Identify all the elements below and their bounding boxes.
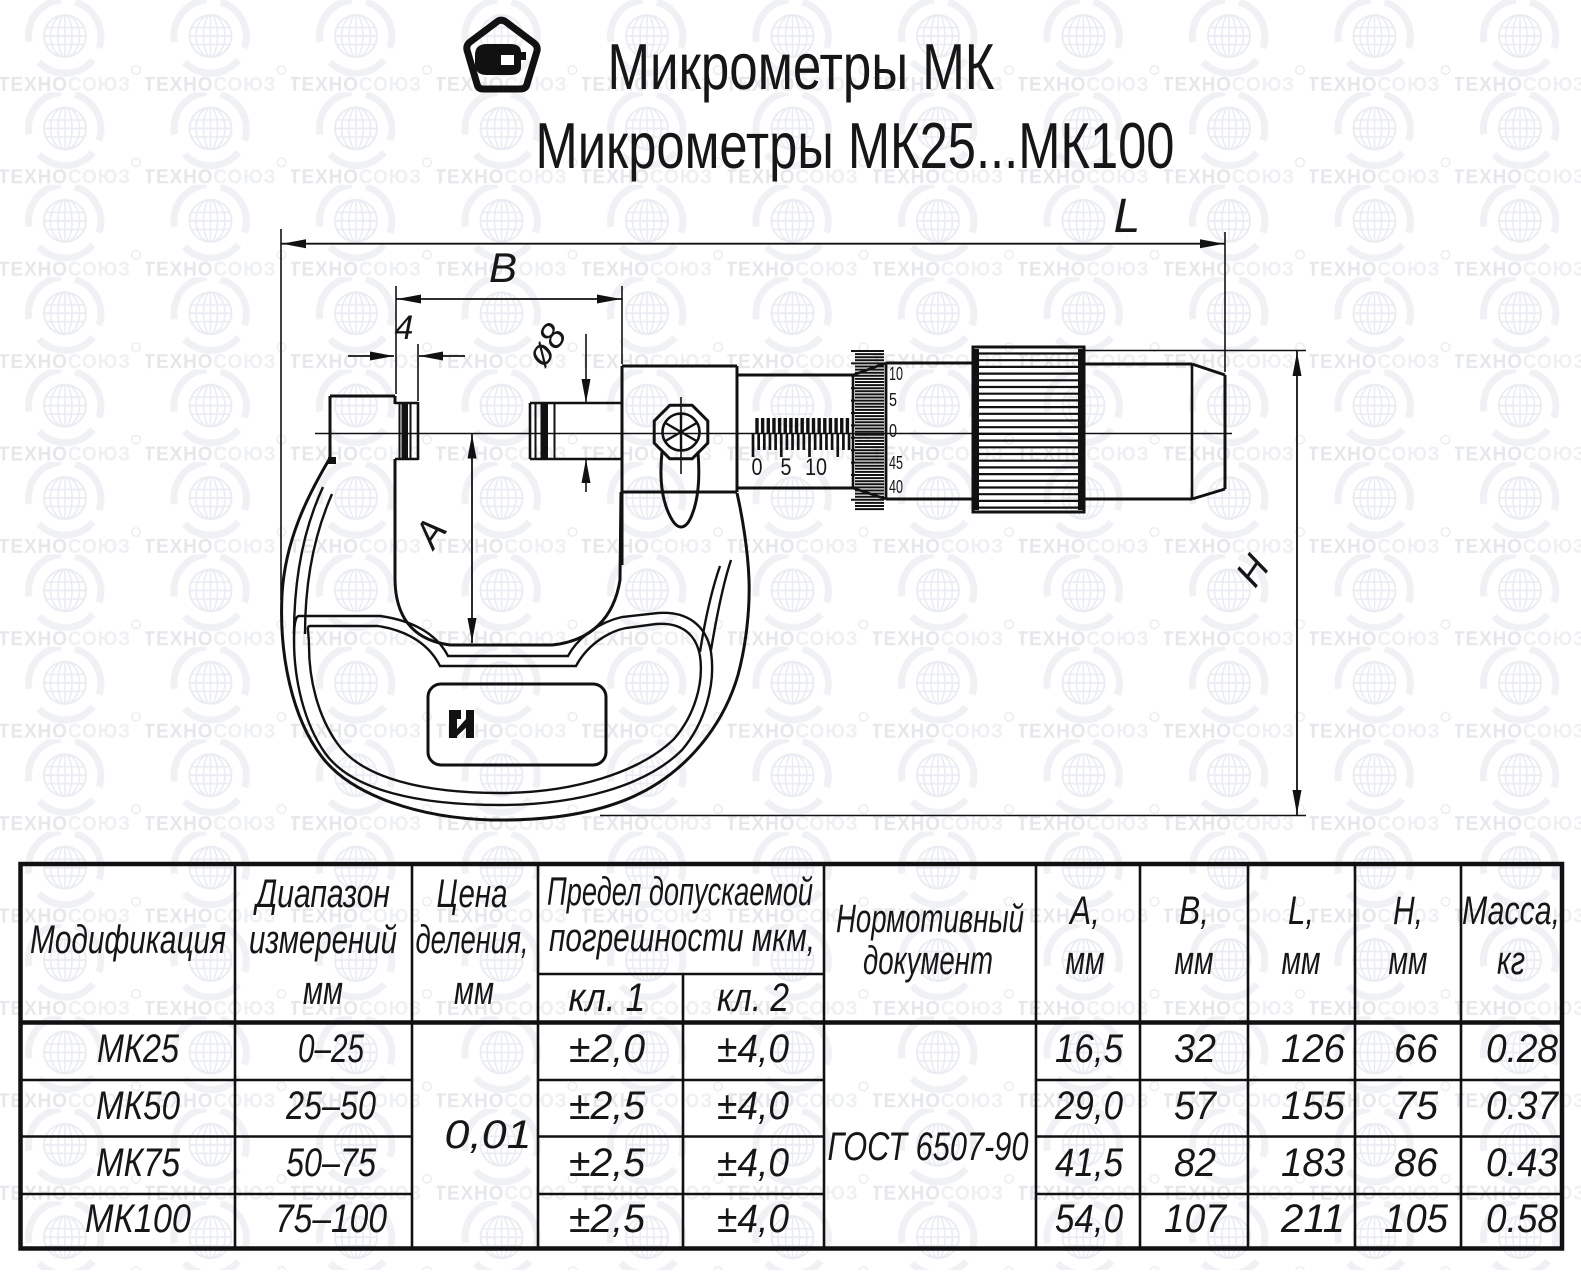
svg-text:документ: документ <box>863 939 993 983</box>
svg-text:126: 126 <box>1281 1027 1346 1071</box>
svg-text:155: 155 <box>1281 1084 1346 1128</box>
svg-text:МК75: МК75 <box>96 1141 181 1185</box>
svg-text:B: B <box>489 244 517 291</box>
svg-text:0.58: 0.58 <box>1486 1197 1559 1241</box>
svg-text:211: 211 <box>1280 1197 1345 1241</box>
svg-text:86: 86 <box>1394 1141 1439 1185</box>
svg-text:Нормотивный: Нормотивный <box>836 897 1024 941</box>
svg-text:66: 66 <box>1394 1027 1439 1071</box>
svg-text:кл. 2: кл. 2 <box>717 976 789 1020</box>
svg-text:Масса,: Масса, <box>1462 889 1560 933</box>
svg-text:кл. 1: кл. 1 <box>569 976 646 1020</box>
svg-text:L: L <box>1114 190 1141 243</box>
svg-text:0,01: 0,01 <box>445 1113 532 1157</box>
svg-text:кг: кг <box>1497 939 1525 983</box>
svg-text:±4,0: ±4,0 <box>717 1084 789 1128</box>
svg-text:±4,0: ±4,0 <box>717 1027 789 1071</box>
svg-text:0.37: 0.37 <box>1486 1084 1560 1128</box>
svg-text:Микрометры МК25...МК100: Микрометры МК25...МК100 <box>536 109 1175 182</box>
svg-text:мм: мм <box>1282 939 1321 983</box>
svg-text:Предел допускаемой: Предел допускаемой <box>547 870 813 914</box>
svg-text:75–100: 75–100 <box>275 1197 387 1241</box>
svg-text:5: 5 <box>889 390 897 410</box>
svg-text:Микрометры МК: Микрометры МК <box>608 30 995 103</box>
svg-text:0.28: 0.28 <box>1486 1027 1559 1071</box>
svg-text:А,: А, <box>1068 889 1100 933</box>
svg-text:погрешности мкм,: погрешности мкм, <box>549 916 815 960</box>
svg-text:мм: мм <box>454 969 494 1013</box>
svg-text:107: 107 <box>1164 1197 1228 1241</box>
svg-text:54,0: 54,0 <box>1055 1197 1123 1241</box>
svg-text:±2,5: ±2,5 <box>569 1197 646 1241</box>
svg-text:МК25: МК25 <box>97 1027 180 1071</box>
svg-text:32: 32 <box>1174 1027 1216 1071</box>
svg-text:мм: мм <box>1389 939 1428 983</box>
svg-text:0: 0 <box>889 421 897 441</box>
svg-text:45: 45 <box>889 453 903 473</box>
svg-text:измерений: измерений <box>249 918 397 962</box>
svg-text:Модификация: Модификация <box>30 918 226 962</box>
svg-text:0–25: 0–25 <box>298 1027 365 1071</box>
svg-text:Диапазон: Диапазон <box>253 872 390 916</box>
svg-text:0.43: 0.43 <box>1486 1141 1558 1185</box>
svg-text:16,5: 16,5 <box>1055 1027 1124 1071</box>
svg-text:±4,0: ±4,0 <box>717 1141 789 1185</box>
svg-text:5: 5 <box>781 454 792 481</box>
svg-text:МК100: МК100 <box>85 1197 191 1241</box>
svg-text:57: 57 <box>1174 1084 1218 1128</box>
svg-text:183: 183 <box>1281 1141 1345 1185</box>
svg-text:25–50: 25–50 <box>285 1084 376 1128</box>
svg-text:±4,0: ±4,0 <box>717 1197 789 1241</box>
svg-text:Н,: Н, <box>1393 889 1423 933</box>
svg-text:±2,0: ±2,0 <box>569 1027 645 1071</box>
svg-text:40: 40 <box>889 477 903 497</box>
svg-text:82: 82 <box>1174 1141 1216 1185</box>
svg-text:L,: L, <box>1288 889 1314 933</box>
svg-text:50–75: 50–75 <box>286 1141 377 1185</box>
svg-text:29,0: 29,0 <box>1054 1084 1123 1128</box>
svg-text:4: 4 <box>395 309 414 347</box>
svg-text:мм: мм <box>1175 939 1214 983</box>
svg-text:10: 10 <box>805 454 827 481</box>
svg-text:0: 0 <box>752 454 763 481</box>
svg-text:МК50: МК50 <box>96 1084 180 1128</box>
svg-text:мм: мм <box>1066 939 1105 983</box>
svg-text:В,: В, <box>1179 889 1209 933</box>
svg-text:±2,5: ±2,5 <box>569 1141 646 1185</box>
svg-text:10: 10 <box>889 364 903 384</box>
svg-text:деления,: деления, <box>416 918 529 962</box>
svg-text:41,5: 41,5 <box>1055 1141 1124 1185</box>
svg-text:±2,5: ±2,5 <box>569 1084 646 1128</box>
svg-text:Цена: Цена <box>437 872 508 916</box>
svg-text:75: 75 <box>1394 1084 1439 1128</box>
svg-text:105: 105 <box>1384 1197 1449 1241</box>
svg-text:ГОСТ 6507-90: ГОСТ 6507-90 <box>828 1125 1029 1169</box>
svg-text:мм: мм <box>303 969 343 1013</box>
